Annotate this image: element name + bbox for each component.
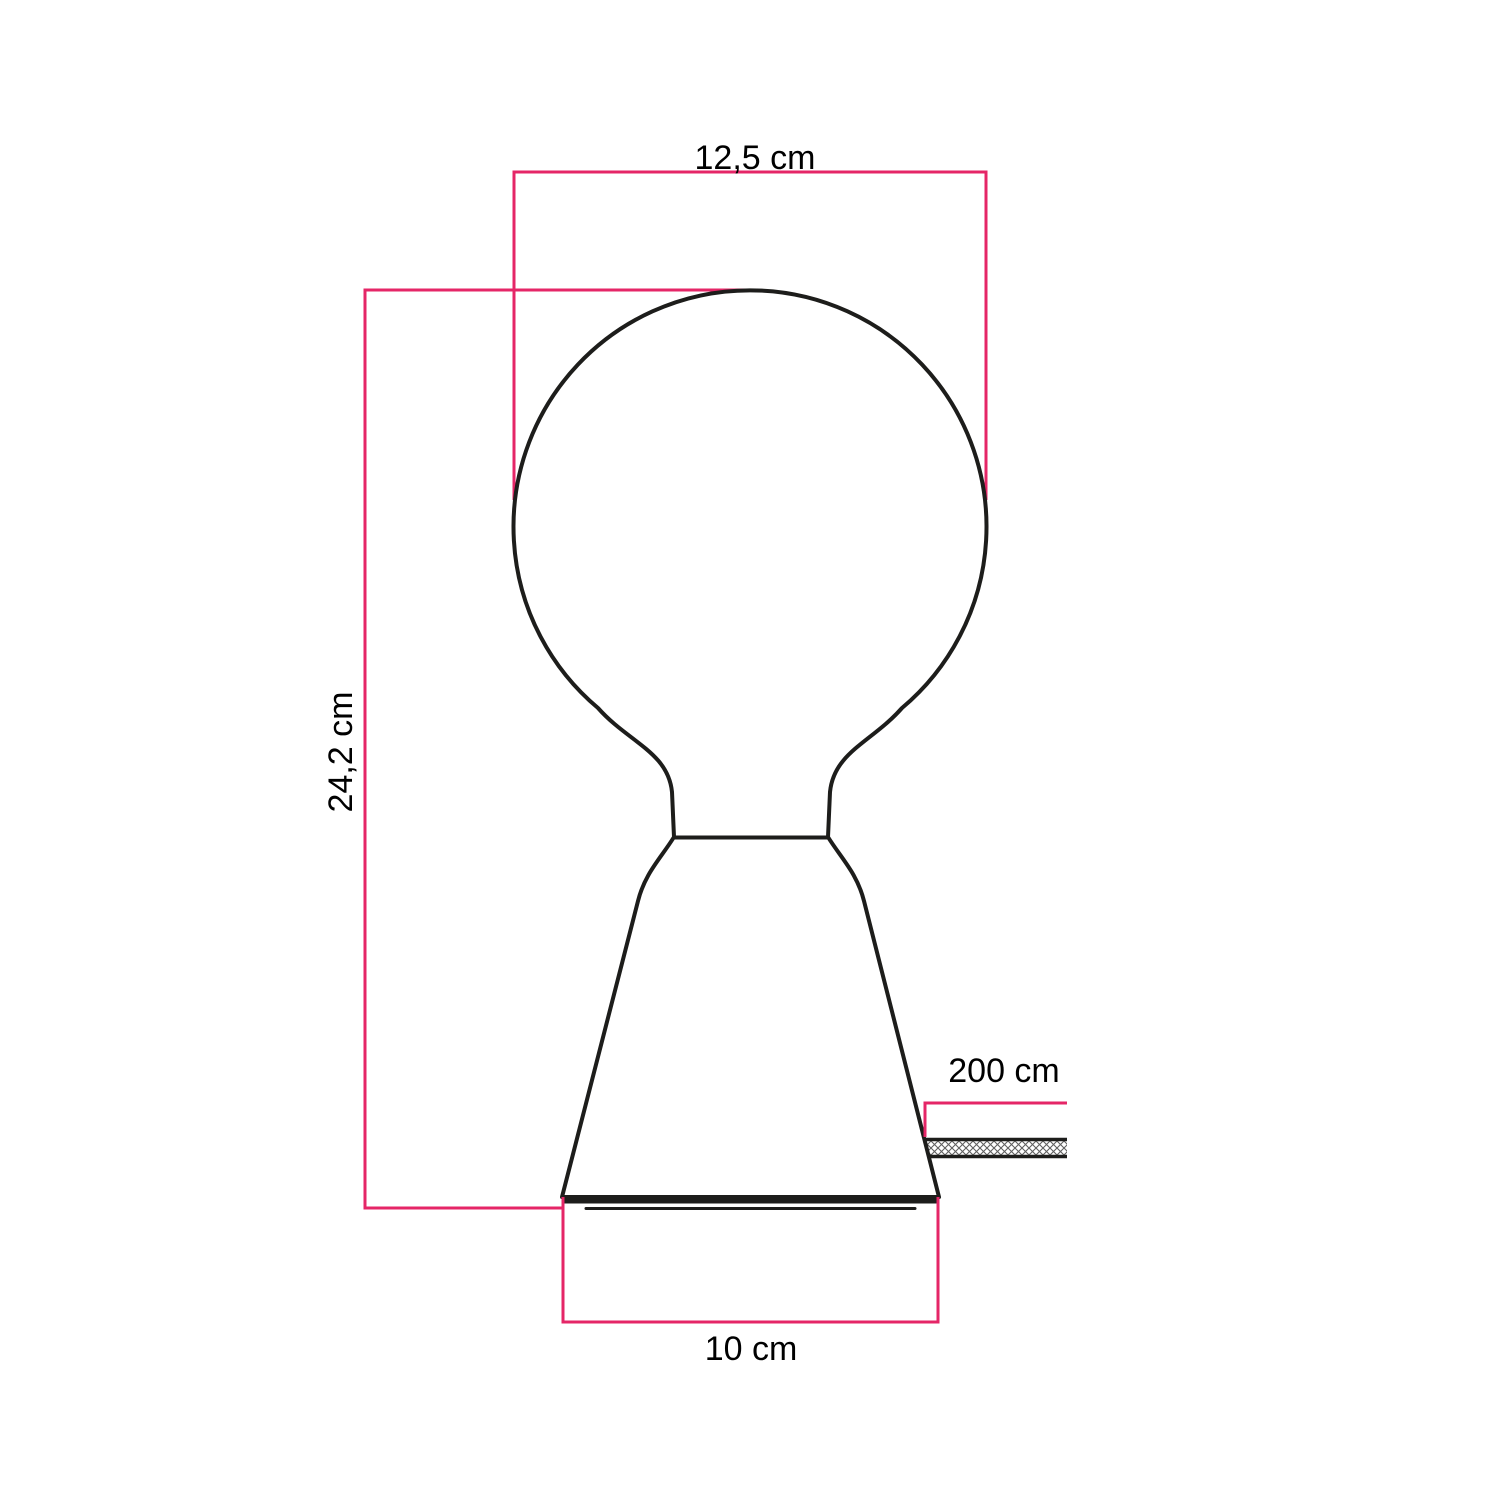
lamp-silhouette xyxy=(514,290,987,1197)
diagram-canvas: 12,5 cm 24,2 cm 200 cm 10 cm xyxy=(0,0,1500,1500)
cable-hatch-fill xyxy=(912,1140,1067,1156)
label-cable-length: 200 cm xyxy=(948,1052,1060,1090)
lamp-outline-group xyxy=(514,290,987,1208)
power-cable xyxy=(912,1140,1067,1157)
label-total-height: 24,2 cm xyxy=(322,692,360,813)
label-base-width: 10 cm xyxy=(705,1330,798,1368)
dim-base-width-bracket xyxy=(563,1197,938,1322)
label-bulb-width: 12,5 cm xyxy=(695,139,816,177)
dim-cable-bracket xyxy=(925,1103,1067,1137)
lamp-dimension-diagram: 12,5 cm 24,2 cm 200 cm 10 cm xyxy=(0,0,1500,1500)
